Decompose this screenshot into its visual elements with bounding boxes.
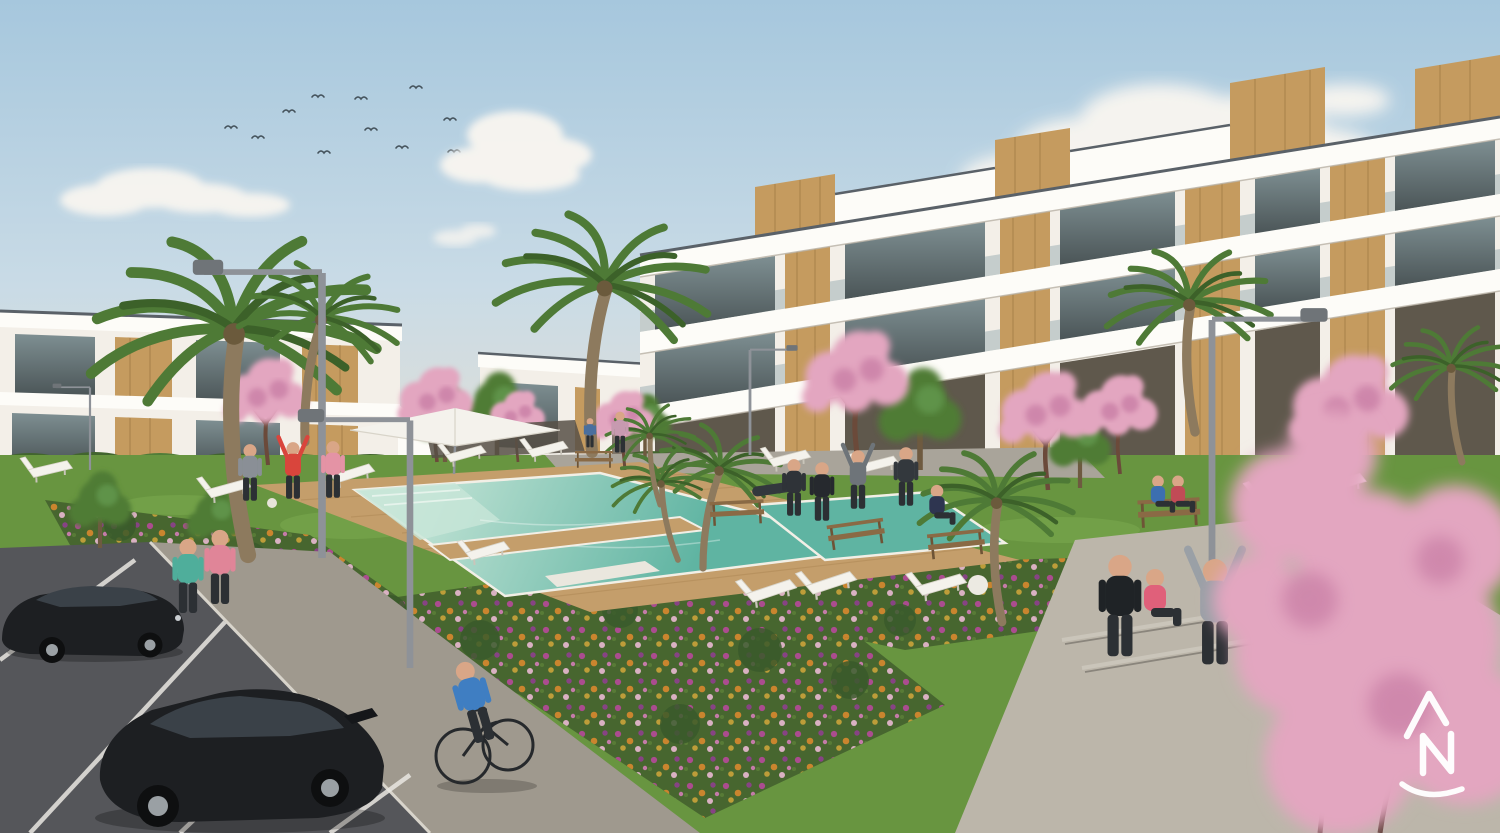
headlight [175, 615, 181, 621]
render-canvas [0, 0, 1500, 833]
ball [267, 498, 277, 508]
pool-side-table [968, 575, 988, 595]
